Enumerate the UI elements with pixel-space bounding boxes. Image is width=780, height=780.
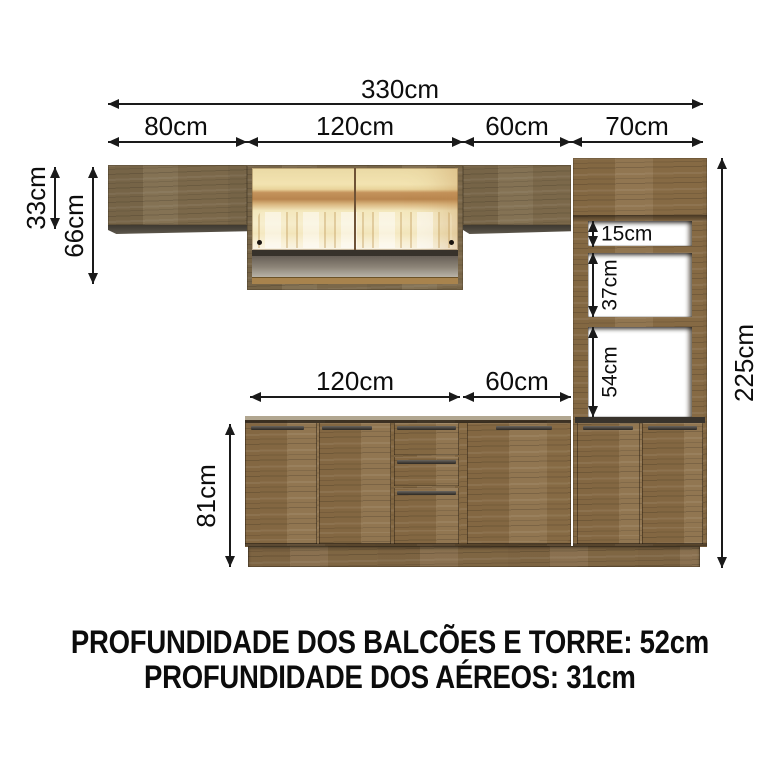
dim-70cm-label: 70cm bbox=[605, 113, 669, 139]
drawer-3-handle bbox=[397, 491, 456, 495]
dim-15cm-line bbox=[592, 221, 594, 247]
dim-80cm-line bbox=[108, 141, 247, 143]
wall-cabinet-left-underside bbox=[108, 225, 247, 234]
glass-door-split bbox=[354, 168, 356, 250]
dim-120cm-top-label: 120cm bbox=[316, 113, 394, 139]
dim-225cm-label: 225cm bbox=[731, 324, 757, 402]
dim-225cm-line bbox=[721, 158, 723, 568]
dim-15cm-label: 15cm bbox=[601, 224, 652, 245]
wall-cabinet-left bbox=[108, 165, 247, 225]
dim-60cm-top-label: 60cm bbox=[485, 113, 549, 139]
wall-cabinet-right-underside bbox=[463, 225, 571, 234]
base-door-1-handle bbox=[251, 426, 304, 430]
tower-door-left bbox=[577, 423, 640, 544]
dim-120cm-top-line bbox=[247, 141, 463, 143]
glass-door-right-handle bbox=[449, 240, 454, 245]
drawer-1-handle bbox=[397, 426, 456, 430]
tower-door-right-handle bbox=[648, 426, 697, 430]
open-niche bbox=[252, 256, 458, 284]
dim-33cm-label: 33cm bbox=[23, 166, 49, 230]
dim-33cm-line bbox=[54, 167, 56, 229]
kitchen-dimension-diagram: 330cm 80cm 120cm 60cm 70cm 33cm 66cm 225… bbox=[0, 0, 780, 780]
dim-54cm-line bbox=[592, 327, 594, 417]
tower-door-left-handle bbox=[583, 426, 633, 430]
dim-60cm-top-line bbox=[463, 141, 571, 143]
dim-120cm-base-line bbox=[250, 396, 460, 398]
dim-80cm-label: 80cm bbox=[144, 113, 208, 139]
base-door-1 bbox=[245, 423, 317, 544]
drawer-2-handle bbox=[397, 460, 456, 464]
dim-120cm-base-label: 120cm bbox=[316, 368, 394, 394]
base-door-3-handle bbox=[496, 426, 552, 430]
dim-81cm-line bbox=[229, 424, 231, 567]
dim-81cm-label: 81cm bbox=[193, 464, 219, 528]
drawer-3 bbox=[394, 488, 459, 544]
dim-37cm-label: 37cm bbox=[600, 259, 621, 310]
footer-depth-balcony: PROFUNDIDADE DOS BALCÕES E TORRE: 52cm bbox=[0, 626, 780, 658]
dim-66cm-line bbox=[92, 167, 94, 284]
base-door-3 bbox=[467, 423, 571, 544]
footer-depth-aereo: PROFUNDIDADE DOS AÉREOS: 31cm bbox=[0, 661, 780, 693]
dim-70cm-line bbox=[571, 141, 703, 143]
footer-depth-balcony-text: PROFUNDIDADE DOS BALCÕES E TORRE: 52cm bbox=[71, 626, 709, 658]
dim-60cm-base-label: 60cm bbox=[485, 368, 549, 394]
wall-cabinet-right bbox=[463, 165, 571, 225]
dim-37cm-line bbox=[592, 253, 594, 317]
tower-door-right bbox=[642, 423, 703, 544]
dim-54cm-label: 54cm bbox=[600, 346, 621, 397]
base-door-2-handle bbox=[322, 426, 372, 430]
plinth bbox=[248, 546, 700, 567]
dim-60cm-base-line bbox=[463, 396, 571, 398]
footer-depth-aereo-text: PROFUNDIDADE DOS AÉREOS: 31cm bbox=[144, 661, 636, 693]
glass-door-left-handle bbox=[257, 240, 262, 245]
dim-66cm-label: 66cm bbox=[61, 194, 87, 258]
dim-total-width-label: 330cm bbox=[361, 76, 439, 102]
base-door-2 bbox=[319, 423, 391, 544]
